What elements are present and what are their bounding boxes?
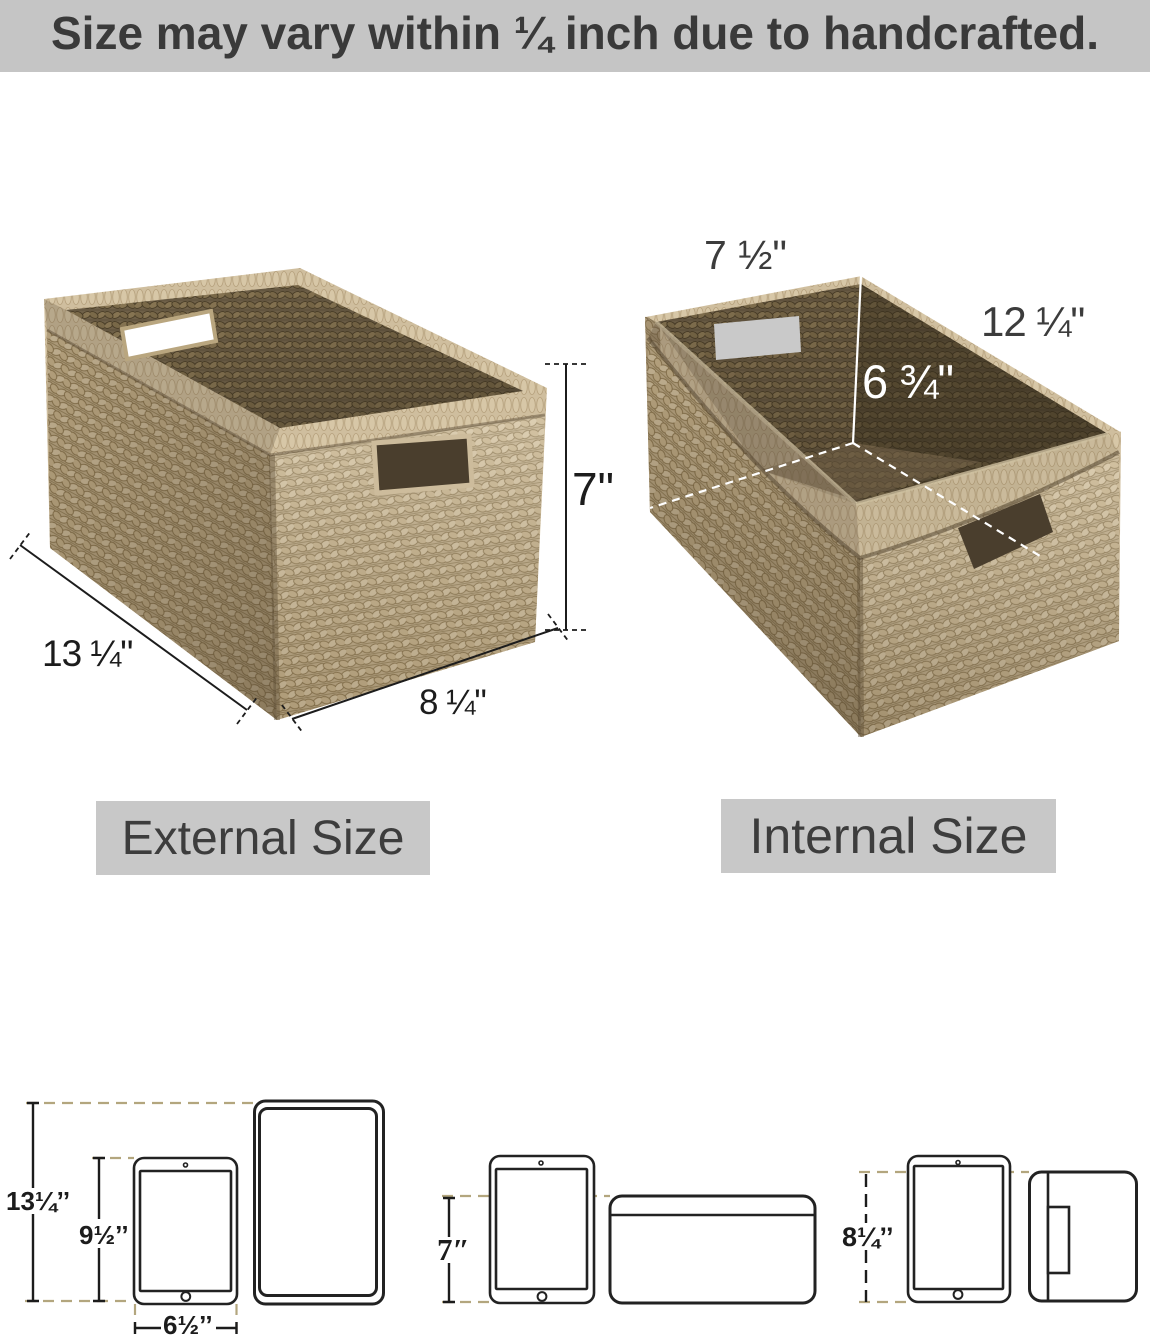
svg-text:13¼’’: 13¼’’	[6, 1186, 70, 1216]
svg-text:13 ¼": 13 ¼"	[42, 633, 132, 674]
svg-text:12 ¼": 12 ¼"	[981, 298, 1084, 345]
svg-text:7 ½": 7 ½"	[704, 232, 787, 278]
svg-text:6 ¾": 6 ¾"	[862, 355, 953, 408]
svg-text:6½’’: 6½’’	[163, 1310, 213, 1339]
svg-text:9½’’: 9½’’	[79, 1220, 129, 1250]
svg-text:7": 7"	[572, 463, 614, 515]
svg-text:8 ¼": 8 ¼"	[419, 683, 486, 722]
svg-text:8¼’’: 8¼’’	[842, 1222, 894, 1252]
svg-text:7″: 7″	[437, 1232, 470, 1267]
